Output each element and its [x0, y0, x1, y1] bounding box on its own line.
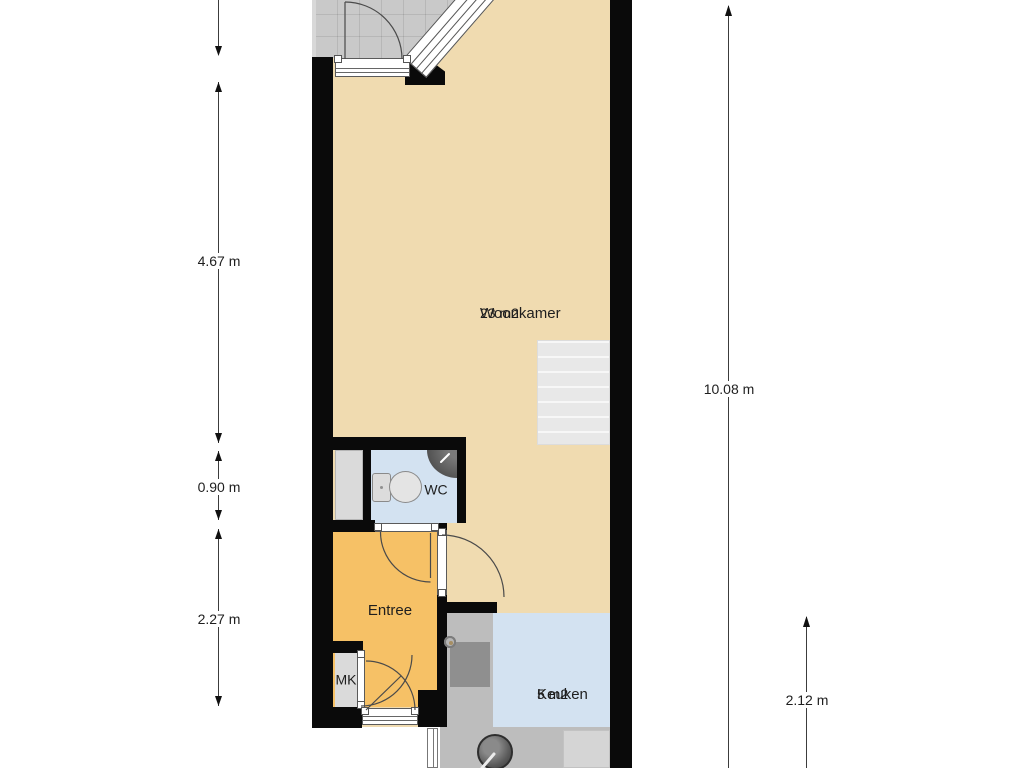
mk-label: MK: [336, 672, 357, 689]
mk-door-opening: [357, 652, 365, 707]
dimension-label-4-67: 4.67 m: [195, 253, 244, 269]
keuken-floor: [493, 613, 610, 727]
entree-label: Entree: [368, 602, 412, 620]
dimension-label-2-27: 2.27 m: [195, 611, 244, 627]
wall-keuken-horizontal: [447, 602, 497, 613]
floor-plan-canvas: Woonkamer 23 m2 Keuken 5 m2 Entree WC MK…: [0, 0, 1024, 768]
stove-icon: [450, 642, 490, 687]
wall-bottom-right-chunk: [418, 690, 440, 727]
wall-right-exterior: [610, 0, 632, 768]
closet-next-to-wc: [335, 450, 363, 520]
wall-closet-divider: [363, 450, 371, 520]
dimension-label-0-90: 0.90 m: [195, 479, 244, 495]
balcony-door-opening: [335, 58, 410, 77]
dimension-label-2-12: 2.12 m: [783, 692, 832, 708]
kitchen-counter-block: [563, 730, 610, 768]
entrance-side-window: [427, 728, 438, 768]
woonkamer-area: 23 m2: [480, 305, 519, 322]
wall-bottom-left: [312, 707, 362, 728]
toilet-bowl-icon: [389, 471, 422, 503]
front-door-opening: [362, 708, 418, 725]
wc-door-opening: [375, 523, 438, 532]
wall-wc-right: [457, 450, 466, 523]
stairs-icon: [537, 340, 610, 445]
hall-door-opening: [437, 530, 447, 595]
keuken-area: 5 m2: [537, 686, 568, 703]
wc-label: WC: [424, 482, 447, 499]
wall-wc-top: [333, 437, 466, 450]
sink-icon: [477, 734, 513, 768]
wall-under-closet: [333, 520, 375, 532]
wall-left-exterior: [312, 57, 333, 728]
dimension-label-10-08: 10.08 m: [701, 381, 758, 397]
